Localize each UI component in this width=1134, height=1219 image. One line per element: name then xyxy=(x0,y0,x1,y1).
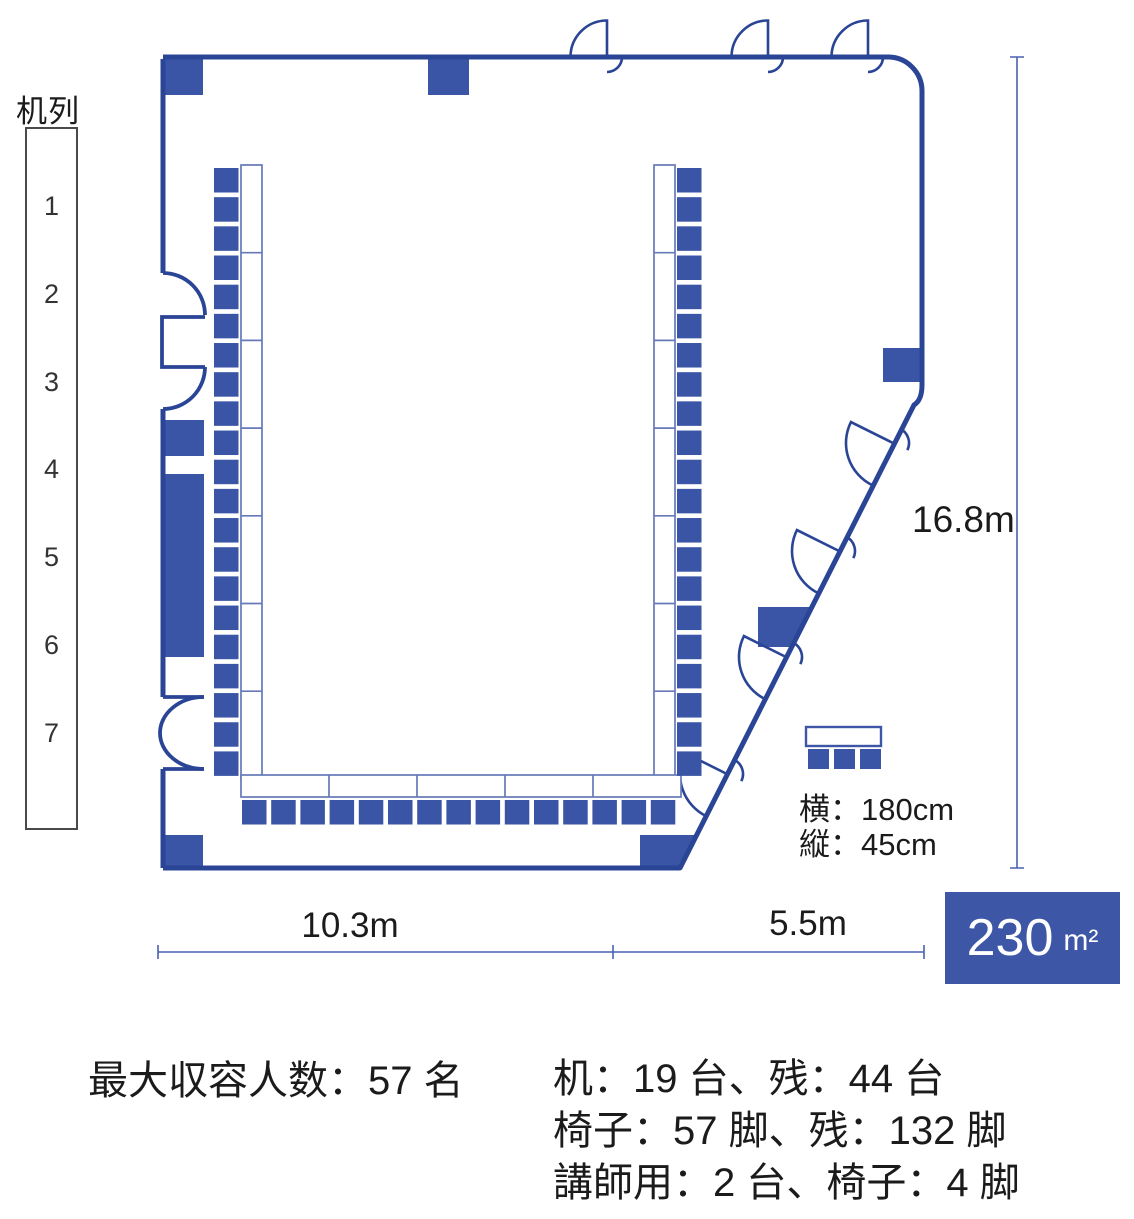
chair xyxy=(651,800,676,825)
chair xyxy=(446,800,471,825)
chair xyxy=(592,800,617,825)
door-left-double-arcs xyxy=(160,697,204,769)
door-top-3 xyxy=(832,20,884,72)
area-value: 230 xyxy=(967,912,1054,964)
pillar-left-large xyxy=(161,474,204,657)
chair xyxy=(214,576,239,601)
chair xyxy=(271,800,296,825)
chair xyxy=(388,800,413,825)
desk-row-number: 3 xyxy=(27,369,76,396)
chair xyxy=(476,800,501,825)
chair xyxy=(214,547,239,572)
chair xyxy=(677,722,702,747)
sample-chair xyxy=(860,749,881,769)
chair xyxy=(214,722,239,747)
desk-column xyxy=(654,165,675,779)
door-left-upper-arc xyxy=(163,273,205,315)
chair xyxy=(214,489,239,514)
chair xyxy=(677,635,702,660)
door-left-upper-frame xyxy=(162,317,205,367)
pillar-bottom-left xyxy=(163,835,203,868)
dim-line-horizontal xyxy=(158,945,924,959)
inventory-desks-text: 机：19 台、残：44 台 xyxy=(553,1046,944,1104)
chair xyxy=(677,226,702,251)
inventory-chairs-text: 椅子：57 脚、残：132 脚 xyxy=(553,1098,1006,1156)
area-badge: 230 m² xyxy=(945,892,1120,984)
chair xyxy=(677,372,702,397)
door-diag-2 xyxy=(776,516,860,600)
dim-line-vertical xyxy=(1010,57,1024,868)
chair xyxy=(300,800,325,825)
chair xyxy=(677,460,702,485)
desk-sample-chairs xyxy=(808,749,881,769)
chair xyxy=(677,431,702,456)
desk-column xyxy=(241,165,262,779)
desk-row-number: 4 xyxy=(27,456,76,483)
top-doors xyxy=(571,20,884,72)
desk-sample-table xyxy=(806,727,881,746)
chair xyxy=(242,800,267,825)
pillar-right-wall xyxy=(883,348,924,382)
chair xyxy=(214,226,239,251)
chair xyxy=(214,606,239,631)
chair xyxy=(677,197,702,222)
capacity-text: 最大収容人数：57 名 xyxy=(88,1048,464,1106)
chair xyxy=(677,256,702,281)
area-unit: m² xyxy=(1063,920,1098,956)
desk-row-number: 6 xyxy=(27,632,76,659)
chair xyxy=(214,401,239,426)
chair xyxy=(214,518,239,543)
floorplan-page: 机列 1234567 16.8m 10.3m 5.5m 横：180cm 縦：45… xyxy=(0,0,1134,1219)
chair xyxy=(214,693,239,718)
desk-rows-box: 1234567 xyxy=(25,127,78,830)
chair xyxy=(677,489,702,514)
desk-depth-label: 縦：45cm xyxy=(799,819,937,864)
chair xyxy=(214,751,239,776)
chair xyxy=(677,664,702,689)
chair xyxy=(677,401,702,426)
dim-width-left-label: 10.3m xyxy=(280,906,420,946)
chair xyxy=(214,197,239,222)
door-top-1 xyxy=(571,20,623,72)
desk-row xyxy=(241,775,681,797)
chair xyxy=(677,285,702,310)
chair xyxy=(677,751,702,776)
chair xyxy=(677,343,702,368)
pillar-top-left xyxy=(163,57,203,95)
desk-row-number: 1 xyxy=(27,193,76,220)
desk-row-number: 2 xyxy=(27,281,76,308)
chair xyxy=(214,168,239,193)
chair xyxy=(214,664,239,689)
chair xyxy=(622,800,647,825)
chair xyxy=(677,314,702,339)
sample-chair xyxy=(808,749,829,769)
dim-width-right-label: 5.5m xyxy=(748,904,868,944)
dim-height-label: 16.8m xyxy=(912,499,1015,541)
chair xyxy=(677,547,702,572)
door-diag-1 xyxy=(830,408,914,492)
chair xyxy=(214,285,239,310)
desk-row-number: 5 xyxy=(27,544,76,571)
pillar-left-small xyxy=(161,420,204,456)
chair xyxy=(677,518,702,543)
furniture xyxy=(214,165,702,825)
chair xyxy=(214,460,239,485)
chair xyxy=(505,800,530,825)
chair xyxy=(359,800,384,825)
chair xyxy=(214,372,239,397)
chair xyxy=(214,256,239,281)
door-left-lower-arc xyxy=(163,367,205,409)
sample-chair xyxy=(834,749,855,769)
chair xyxy=(214,343,239,368)
chair xyxy=(677,168,702,193)
chair xyxy=(417,800,442,825)
chair xyxy=(677,693,702,718)
desk-sample xyxy=(806,727,881,769)
pillar-top-mid xyxy=(428,57,469,95)
chair xyxy=(330,800,355,825)
chair xyxy=(214,314,239,339)
chair xyxy=(677,606,702,631)
chair xyxy=(563,800,588,825)
chair xyxy=(214,431,239,456)
inventory-lecturer-text: 講師用：2 台、椅子：4 脚 xyxy=(553,1150,1020,1208)
chair xyxy=(534,800,559,825)
desk-row-number: 7 xyxy=(27,720,76,747)
door-left-double-frame xyxy=(163,697,204,769)
door-top-2 xyxy=(732,20,784,72)
desk-rows-title: 机列 xyxy=(16,86,80,131)
chair xyxy=(214,635,239,660)
chair xyxy=(677,576,702,601)
floorplan-drawing xyxy=(0,0,1134,1219)
